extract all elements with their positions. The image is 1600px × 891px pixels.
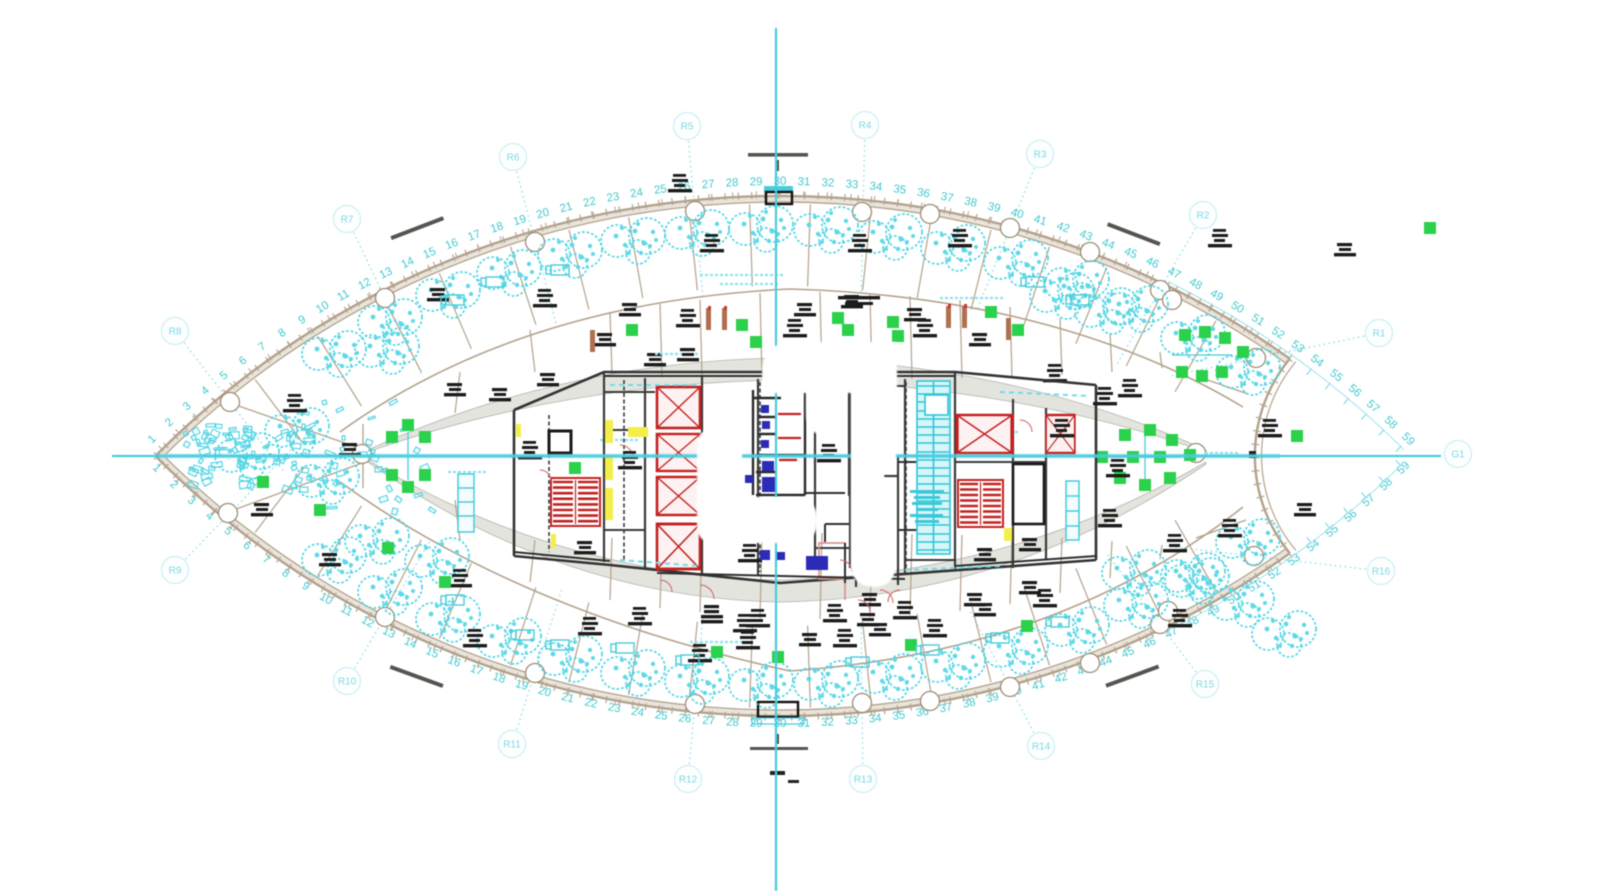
svg-text:R13: R13: [854, 775, 873, 786]
svg-text:5: 5: [218, 369, 230, 382]
svg-text:34: 34: [868, 712, 883, 725]
svg-text:7: 7: [260, 553, 272, 566]
svg-text:21: 21: [559, 201, 574, 216]
svg-text:18: 18: [489, 220, 505, 235]
svg-text:R8: R8: [169, 327, 182, 338]
svg-text:38: 38: [963, 195, 978, 209]
svg-text:33: 33: [845, 178, 859, 191]
svg-text:8: 8: [280, 567, 292, 581]
svg-text:16: 16: [444, 236, 460, 252]
svg-text:55: 55: [1327, 367, 1344, 384]
svg-text:58: 58: [1382, 414, 1400, 432]
svg-text:4: 4: [199, 384, 212, 398]
svg-text:12: 12: [356, 276, 373, 293]
svg-text:51: 51: [1249, 312, 1266, 329]
svg-text:57: 57: [1364, 398, 1382, 415]
svg-text:3: 3: [181, 400, 194, 413]
svg-text:27: 27: [701, 178, 715, 191]
svg-text:2: 2: [163, 416, 176, 429]
svg-text:44: 44: [1100, 236, 1117, 252]
svg-text:R2: R2: [1197, 211, 1210, 222]
svg-text:25: 25: [653, 183, 667, 197]
svg-text:R11: R11: [503, 740, 521, 751]
svg-text:R14: R14: [1032, 742, 1051, 753]
svg-text:59: 59: [1399, 431, 1417, 449]
svg-text:17: 17: [466, 228, 482, 244]
svg-text:43: 43: [1078, 228, 1094, 244]
svg-text:6: 6: [237, 354, 249, 367]
svg-text:35: 35: [893, 183, 907, 197]
svg-text:41: 41: [1032, 213, 1048, 228]
svg-text:R1: R1: [1373, 329, 1386, 340]
svg-text:37: 37: [940, 191, 955, 205]
svg-text:R15: R15: [1196, 680, 1215, 691]
svg-text:R6: R6: [507, 153, 520, 164]
svg-text:20: 20: [537, 685, 553, 700]
svg-text:7: 7: [256, 340, 268, 353]
svg-text:G1: G1: [1451, 450, 1465, 461]
svg-text:22: 22: [582, 195, 597, 209]
svg-text:5: 5: [222, 525, 234, 538]
svg-text:1: 1: [146, 433, 159, 446]
svg-text:56: 56: [1346, 382, 1364, 399]
svg-text:R5: R5: [681, 122, 694, 133]
svg-text:14: 14: [399, 255, 416, 271]
svg-text:25: 25: [654, 709, 668, 723]
svg-text:9: 9: [296, 313, 308, 327]
svg-text:R10: R10: [338, 677, 357, 688]
svg-text:6: 6: [241, 539, 253, 552]
svg-text:28: 28: [725, 177, 738, 190]
svg-text:35: 35: [892, 709, 906, 723]
svg-text:R16: R16: [1372, 567, 1391, 578]
svg-text:54: 54: [1308, 353, 1326, 371]
svg-text:53: 53: [1289, 338, 1306, 355]
svg-text:11: 11: [335, 288, 351, 304]
svg-text:23: 23: [606, 191, 621, 205]
svg-text:29: 29: [749, 176, 762, 188]
svg-text:45: 45: [1122, 246, 1138, 262]
svg-text:52: 52: [1269, 325, 1286, 342]
svg-text:R3: R3: [1034, 150, 1047, 161]
svg-text:36: 36: [916, 187, 931, 201]
svg-text:48: 48: [1187, 276, 1204, 293]
svg-text:39: 39: [985, 691, 1000, 706]
svg-text:15: 15: [421, 245, 437, 261]
svg-text:50: 50: [1229, 299, 1246, 316]
svg-text:46: 46: [1144, 255, 1161, 271]
svg-text:42: 42: [1055, 220, 1071, 235]
svg-text:47: 47: [1166, 265, 1183, 281]
svg-text:8: 8: [276, 327, 288, 341]
svg-text:49: 49: [1208, 287, 1225, 304]
svg-text:R7: R7: [341, 215, 354, 226]
svg-text:10: 10: [314, 299, 331, 316]
svg-text:31: 31: [797, 176, 810, 188]
svg-text:13: 13: [378, 265, 395, 281]
svg-text:R12: R12: [679, 775, 698, 786]
svg-text:34: 34: [869, 180, 884, 193]
svg-text:9: 9: [300, 580, 312, 594]
svg-text:R4: R4: [859, 121, 872, 132]
svg-text:39: 39: [986, 201, 1001, 216]
svg-text:R9: R9: [169, 566, 182, 577]
svg-text:32: 32: [821, 177, 834, 190]
svg-text:24: 24: [629, 186, 644, 200]
svg-text:41: 41: [1031, 678, 1047, 693]
svg-text:20: 20: [535, 207, 551, 222]
svg-text:22: 22: [583, 696, 598, 710]
svg-text:19: 19: [512, 213, 528, 228]
